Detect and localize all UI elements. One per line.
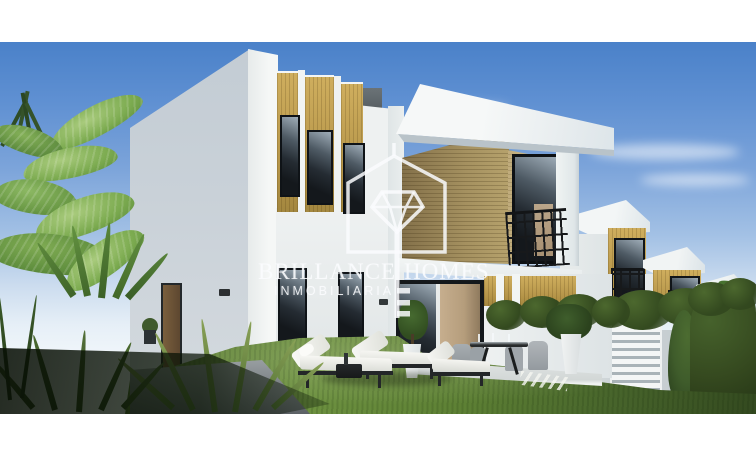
wall-lamp <box>219 289 230 296</box>
lounger-leg <box>480 375 483 386</box>
bottle <box>344 353 348 365</box>
villa-corner-pillar <box>248 49 278 380</box>
wine-glass <box>478 334 480 342</box>
key-icon <box>397 288 410 317</box>
letterbox-top <box>0 0 756 42</box>
lounger-leg <box>438 375 441 386</box>
property-photo-card: BRILLANCE HOMES INMOBILIARIA <box>0 0 756 456</box>
upper-window <box>280 115 300 197</box>
wine-glass <box>492 333 494 342</box>
dining-table-top <box>470 342 528 347</box>
villa-render-photo: BRILLANCE HOMES INMOBILIARIA <box>0 42 756 414</box>
diamond-icon <box>372 192 423 232</box>
lounger-leg <box>378 374 381 388</box>
watermark-brand-right: HOMES <box>404 259 504 285</box>
watermark-brand-left: BRILLANCE <box>258 259 384 285</box>
cloud <box>640 174 750 186</box>
letterbox-bottom <box>0 414 756 456</box>
balcony-railing <box>505 208 570 269</box>
hedge-bush <box>720 278 756 310</box>
house-diamond-key-icon <box>330 142 500 332</box>
side-table <box>336 364 362 378</box>
wine-glass <box>508 334 510 342</box>
watermark-subtitle: INMOBILIARIA <box>274 284 394 298</box>
dining-chair <box>528 341 548 370</box>
terrace-hedge-bush <box>592 296 630 328</box>
